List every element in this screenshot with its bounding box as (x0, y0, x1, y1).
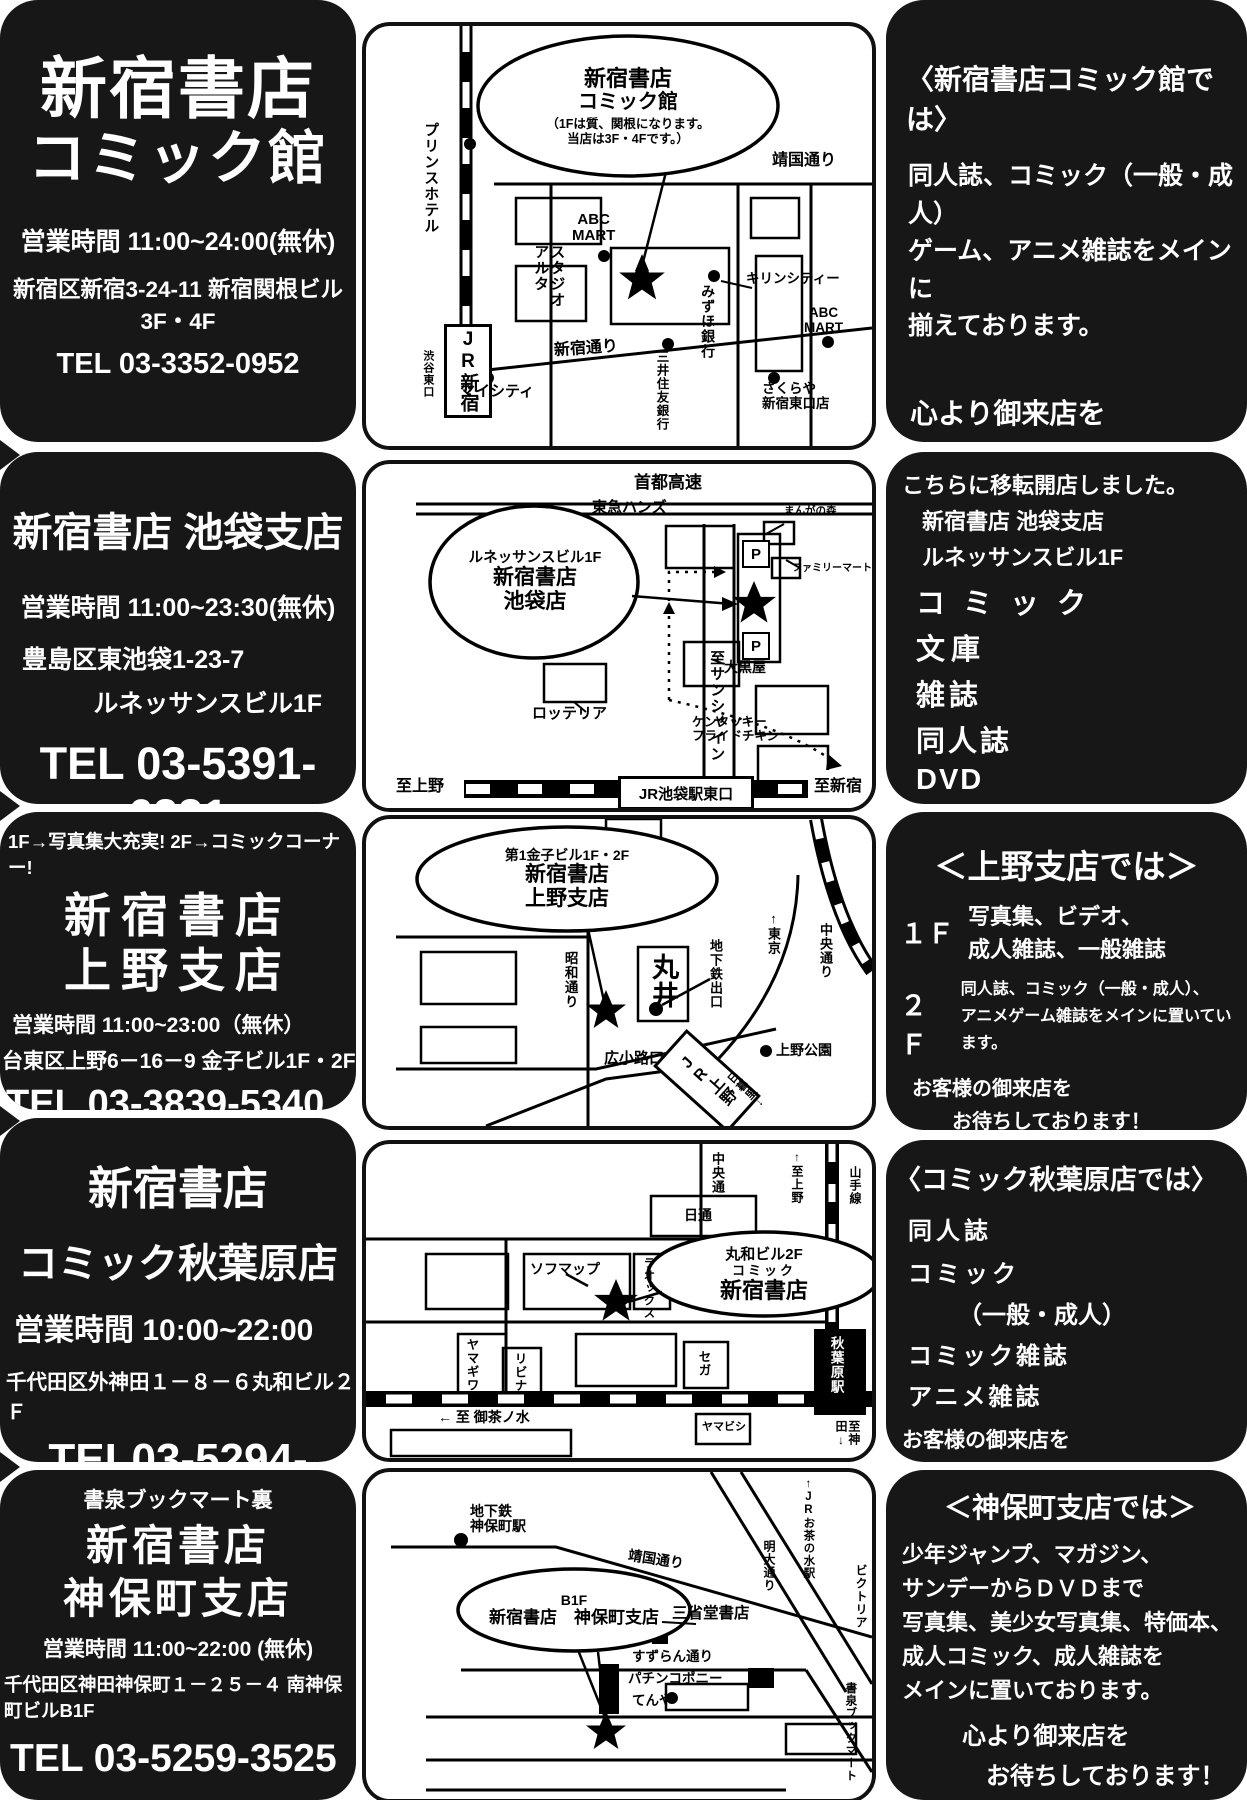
info-item: 文庫 (916, 626, 1247, 668)
map-label-victoria: ビクトリア (854, 1564, 867, 1629)
info-intro-3: ルネッサンスビル1F (922, 540, 1247, 572)
info-closing-2: お待ちしております！ (942, 1459, 1247, 1462)
map-label-shuto-expressway: 首都高速 (634, 474, 702, 492)
store-address: 台東区上野6－16－9 金子ビル1F・2F (0, 1045, 356, 1075)
map-label-to-ueno: 至上野 (396, 778, 444, 795)
store-block-jimbocho: 書泉ブックマート裏 新宿書店神保町支店 営業時間 11:00~22:00 (無休… (0, 1470, 356, 1800)
map-label-abc-mart: ABC MART (572, 212, 615, 244)
info-closing: お客様の御来店を (912, 1072, 1247, 1101)
map-label-parking-1: P (742, 540, 770, 568)
info-heading: ＜上野支店では＞ (886, 840, 1247, 888)
map-label-shosen-bookmart: 書泉ブックマート (844, 1682, 856, 1782)
info-body: 少年ジャンプ、マガジン、 サンデーからＤＶＤまで 写真集、美少女写真集、特価本、… (902, 1538, 1247, 1708)
map-label-kfc: ケンタッキー フライドチキン (692, 716, 779, 743)
bubble-pointer (632, 596, 732, 604)
map-label-familymart: ファミリーマート (792, 564, 872, 575)
map-label-prince-hotel: プリンスホテル (422, 122, 438, 234)
map-panel-akihabara: 丸和ビル2F コミック 新宿書店 中央通 ↑至上野 山手線 日通 ソフマップ ラ… (362, 1140, 876, 1462)
map-label-mizuho-bank: みずほ銀行 (700, 284, 715, 359)
store-hours: 営業時間 10:00~22:00 (0, 1305, 356, 1349)
info-heading: 〈新宿書店コミック館では〉 (906, 58, 1247, 138)
map-label-mycity: マイシティ (460, 384, 534, 400)
store-note: 1F→写真集大充実! 2F→コミックコーナー! (0, 828, 356, 880)
map-label-meidai-dori: 明大通り (762, 1540, 775, 1592)
store-hours: 営業時間 11:00~23:00（無休） (0, 1009, 356, 1039)
info-closing-2: お待ちしております！ (986, 1756, 1247, 1791)
store-tel: TEL 03-5259-3525 (0, 1737, 356, 1781)
map-label-yamanote-line: 山手線 (848, 1166, 861, 1205)
separator-arrow-icon (0, 1452, 20, 1482)
map-label-nittsu: 日通 (684, 1208, 712, 1223)
map-label-jr-ikebukuro-east-exit: JR池袋駅東口 (618, 776, 754, 810)
map-label-sakuraya: さくらや 新宿東口店 (762, 382, 830, 411)
info-item: コミック (916, 580, 1247, 622)
star-marker (586, 990, 626, 1028)
info-item: （一般・成人） (958, 1295, 1247, 1330)
map-label-laox: ラオックス (642, 1257, 654, 1320)
info-heading: 〈コミック秋葉原店では〉 (894, 1158, 1247, 1197)
map-label-to-sunshine: 至サンシャイン (708, 650, 724, 762)
map-label-kirin-city: キリンシティー (746, 272, 840, 287)
info-block-ueno: ＜上野支店では＞ １Ｆ 写真集、ビデオ、 成人雑誌、一般雑誌 ２Ｆ 同人誌、コミ… (886, 812, 1247, 1130)
map-label-lotteria: ロッテリア (532, 706, 607, 722)
map-label-parking-2: P (742, 632, 770, 660)
map-label-to-ueno: ↑至上野 (790, 1150, 803, 1204)
map-label-yasukuni-dori: 靖国通り (772, 152, 836, 169)
separator-arrow-icon (0, 440, 20, 470)
separator-arrow-icon (0, 1106, 20, 1136)
store-block-ueno: 1F→写真集大充実! 2F→コミックコーナー! 新宿書店上野支店 営業時間 11… (0, 812, 356, 1110)
map-label-chuo-dori: 中央通り (818, 923, 832, 979)
store-address: 豊島区東池袋1-23-7 (0, 640, 356, 676)
store-tel: TEL 03-5391-6231 (0, 738, 356, 804)
info-floor-1: １Ｆ 写真集、ビデオ、 成人雑誌、一般雑誌 (900, 900, 1247, 966)
separator-arrow-icon (0, 791, 20, 821)
star-marker (619, 256, 665, 299)
store-address: 千代田区外神田１－８－６丸和ビル２Ｆ (0, 1365, 356, 1425)
store-block-akihabara: 新宿書店 コミック秋葉原店 営業時間 10:00~22:00 千代田区外神田１－… (0, 1118, 356, 1462)
info-floor-2: ２Ｆ 同人誌、コミック（一般・成人）、 アニメゲーム雑誌をメインに置いています。 (900, 976, 1247, 1062)
info-heading: ＜神保町支店では＞ (944, 1486, 1247, 1526)
info-closing: お客様の御来店を (902, 1424, 1247, 1454)
store-title: 新宿書店 (0, 1152, 356, 1217)
store-tel: TEL03-5294-3222 (0, 1435, 356, 1462)
map-label-jr-ochanomizu: ↑JRお茶の水駅 (802, 1478, 814, 1580)
map-callout-text: B1F 新宿書店 神保町支店 (458, 1572, 690, 1648)
store-title: 新宿書店 池袋支店 (0, 500, 356, 558)
map-label-livina: リビナ (512, 1352, 526, 1393)
store-tel: TEL 03-3839-5340 (0, 1083, 356, 1110)
info-closing: 心より御来店を (962, 1716, 1247, 1751)
map-label-manga-no-mori: まんがの森 (784, 506, 837, 517)
info-item: DVD (916, 764, 1247, 797)
store-block-ikebukuro: 新宿書店 池袋支店 営業時間 11:00~23:30(無休) 豊島区東池袋1-2… (0, 452, 356, 804)
info-item: コミック雑誌 (908, 1336, 1247, 1371)
map-label-mitsui-sumitomo-bank: 三井住友銀行 (654, 350, 668, 431)
info-closing: 心より御来店を (910, 392, 1247, 432)
store-address: 千代田区神田神保町１－２５－４ 南神保町ビルB1F (0, 1671, 356, 1723)
bubble-pointer (588, 929, 604, 1001)
store-hours: 営業時間 11:00~23:30(無休) (0, 588, 356, 624)
map-label-yamagiwa: ヤマギワ (464, 1338, 478, 1392)
info-item: 同人誌 (908, 1211, 1247, 1246)
map-label-akihabara-station: 秋葉原駅 (828, 1336, 843, 1394)
map-label-to-ochanomizu: ← 至 御茶ノ水 (438, 1410, 530, 1425)
info-intro: こちらに移転開店しました。 (902, 468, 1247, 500)
map-label-pachinko-pony: パチンコポニー (628, 1672, 723, 1687)
map-label-marui: 丸井 (648, 953, 677, 1009)
map-label-ueno-park: 上野公園 (776, 1043, 832, 1058)
store-block-comickan: 新宿書店コミック館 営業時間 11:00~24:00(無休) 新宿区新宿3-24… (0, 0, 356, 442)
store-tel: TEL 03-3352-0952 (0, 348, 356, 381)
map-label-to-kanda: 至神田↓ (834, 1420, 860, 1458)
bubble-pointer (642, 172, 666, 266)
map-label-sega: セガ (696, 1350, 710, 1377)
map-label-to-tokyo: ↑東京 (766, 911, 780, 955)
store-hours: 営業時間 11:00~22:00 (無休) (0, 1633, 356, 1663)
store-note: 書泉ブックマート裏 (0, 1484, 356, 1514)
info-block-jimbocho: ＜神保町支店では＞ 少年ジャンプ、マガジン、 サンデーからＤＶＤまで 写真集、美… (886, 1470, 1247, 1800)
map-label-suzuran-dori: すずらん通り (632, 1650, 713, 1665)
map-panel-ikebukuro: ルネッサンスビル1F 新宿書店 池袋店 首都高速 東急ハンズ まんがの森 ファミ… (362, 460, 876, 812)
store-title: 新宿書店上野支店 (0, 888, 356, 999)
map-label-subway-jimbocho: 地下鉄 神保町駅 (470, 1504, 526, 1534)
map-label-yamabishi: ヤマビシ (702, 1422, 746, 1434)
map-label-studio-alta: スタジオ アルタ (532, 244, 564, 308)
map-buildings (666, 1684, 856, 1754)
store-title: 新宿書店神保町支店 (0, 1520, 356, 1625)
map-callout-text: 丸和ビル2F コミック 新宿書店 (658, 1236, 870, 1314)
info-block-akihabara: 〈コミック秋葉原店では〉 同人誌 コミック （一般・成人） コミック雑誌 アニメ… (886, 1140, 1247, 1462)
info-body: 同人誌、コミック（一般・成人） ゲーム、アニメ雑誌をメインに 揃えております。 (908, 158, 1247, 346)
info-intro-2: 新宿書店 池袋支店 (922, 504, 1247, 536)
map-label-tokyu-hands: 東急ハンズ (592, 500, 667, 516)
map-panel-ueno: 第1金子ビル1F・2F 新宿書店 上野支店 ↑東京 中央通り 昭和通り 丸井 地… (362, 815, 876, 1130)
map-label-abc-mart-2: ABC MART (804, 306, 843, 335)
bubble-pointer (578, 1650, 606, 1720)
star-marker (594, 1279, 638, 1321)
info-item: アニメ雑誌 (908, 1377, 1247, 1412)
map-label-sanseido: 三省堂書店 (672, 1606, 750, 1623)
info-item: 同人誌 (916, 718, 1247, 760)
map-panel-comickan: 新宿書店 コミック館 （1Fは質、関根になります。 当店は3F・4Fです。） プ… (362, 22, 876, 450)
store-title-2: コミック秋葉原店 (0, 1231, 356, 1289)
map-label-shibuya-exit: 渋谷東口 (421, 350, 433, 398)
map-label-subway-exit: 地下鉄出口 (708, 939, 722, 1009)
map-label-sofmap: ソフマップ (530, 1262, 600, 1277)
map-label-tenya: てんや (632, 1694, 673, 1709)
map-label-daikokuya: 大黒屋 (724, 660, 766, 675)
map-callout-text: 新宿書店 コミック館 （1Fは質、関根になります。 当店は3F・4Fです。） (478, 38, 778, 174)
flyer-page: 新宿書店コミック館 営業時間 11:00~24:00(無休) 新宿区新宿3-24… (0, 0, 1247, 1800)
info-closing-2: お待ちしております！ (938, 442, 1247, 443)
store-title: 新宿書店コミック館 (0, 52, 356, 192)
store-hours: 営業時間 11:00~24:00(無休) (0, 222, 356, 258)
map-label-chuo-dori: 中央通 (710, 1152, 724, 1194)
info-block-ikebukuro: こちらに移転開店しました。 新宿書店 池袋支店 ルネッサンスビル1F コミック … (886, 452, 1247, 804)
map-panel-jimbocho: B1F 新宿書店 神保町支店 地下鉄 神保町駅 靖国通り ↑JRお茶の水駅 明大… (362, 1468, 876, 1800)
map-label-jr-shinjuku: JR新宿 (444, 324, 492, 418)
info-item: 雑誌 (916, 672, 1247, 714)
store-address: 新宿区新宿3-24-11 新宿関根ビル3F・4F (0, 272, 356, 336)
map-label-showa-dori: 昭和通り (562, 951, 577, 1009)
store-address-2: ルネッサンスビル1F (0, 684, 356, 720)
info-block-comickan: 〈新宿書店コミック館では〉 同人誌、コミック（一般・成人） ゲーム、アニメ雑誌を… (886, 0, 1247, 442)
info-closing-2: お待ちしております！ (952, 1105, 1247, 1130)
map-callout-text: ルネッサンスビル1F 新宿書店 池袋店 (430, 510, 640, 654)
location-dot (454, 1533, 468, 1547)
location-dot (760, 1045, 772, 1057)
map-label-to-shinjuku: 至新宿 (814, 778, 862, 795)
info-item: コミック (908, 1254, 1247, 1289)
map-callout-text: 第1金子ビル1F・2F 新宿書店 上野支店 (422, 833, 712, 925)
